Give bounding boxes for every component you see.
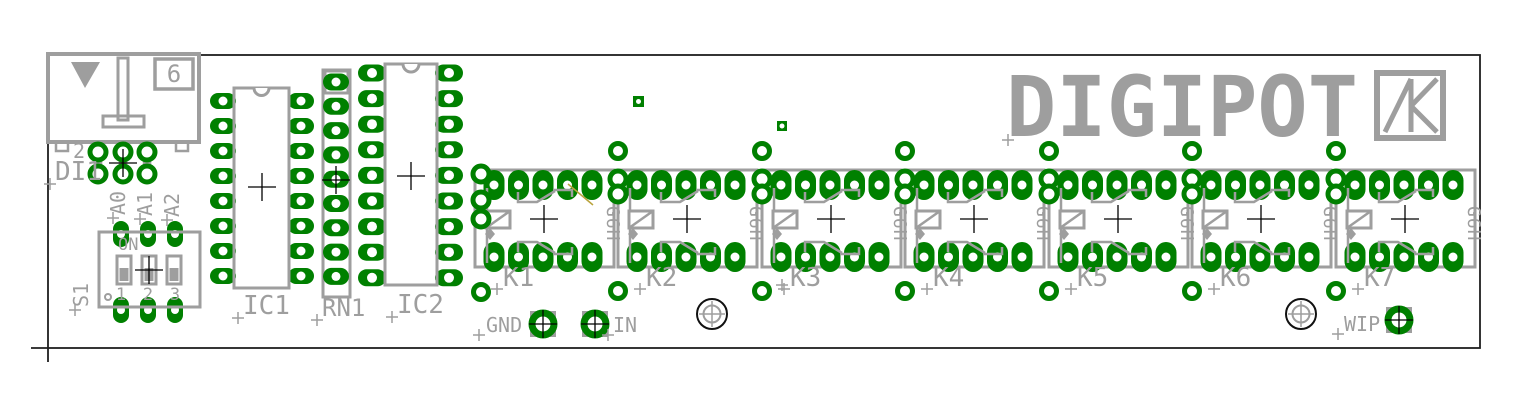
cavity-count-label: 6 <box>167 60 181 88</box>
jumper-a0-label: A0 <box>106 191 130 215</box>
ic2-ref-label: IC2 <box>397 290 444 320</box>
relay-k4: K4 G6H <box>905 170 1053 295</box>
dip-switch-ref-label: S1 <box>69 283 93 307</box>
brand-silkscreen: DIGIPOT <box>1002 58 1443 156</box>
relay-k3: K3 G6H <box>762 170 910 295</box>
jumper-a2-label: A2 <box>160 193 184 217</box>
relay-type-label: G6H <box>1463 206 1484 242</box>
ic2-notch <box>403 64 419 72</box>
ic1-notch <box>254 88 269 96</box>
ic1-footprint: IC1 <box>210 88 314 324</box>
relay-ref-label: K1 <box>503 263 534 293</box>
relay-k5: K5 G6H <box>1049 170 1197 295</box>
dip-pos2-label: 2 <box>143 285 153 305</box>
relay-ref-label: K2 <box>646 263 677 293</box>
relay-ref-label: K3 <box>790 263 821 293</box>
relay-bank: K1 G6H K2 G6H K3 G6H K4 G6H K5 G6H K6 G6… <box>473 144 1484 300</box>
in-label: IN <box>613 313 637 337</box>
gnd-label: GND <box>486 313 522 337</box>
address-jumper-labels: A0 A1 A2 <box>106 191 184 226</box>
brand-logo-icon <box>1377 73 1443 138</box>
relay-type-label: G6H <box>602 206 623 242</box>
rn1-footprint: RN1 <box>311 70 365 326</box>
pcb-layout-view: 6 2 DI1 A0 A1 A2 <box>0 0 1530 407</box>
vias <box>633 96 787 131</box>
connector-ref-label: DI1 <box>55 157 102 187</box>
mounting-hole-icon <box>1286 299 1316 329</box>
relay-k6: K6 G6H <box>1192 170 1340 295</box>
relay-ref-label: K7 <box>1364 263 1395 293</box>
ic1-ref-label: IC1 <box>243 291 290 321</box>
polarity-triangle-icon <box>71 62 100 88</box>
test-points: GND IN WIP <box>473 306 1413 341</box>
relay-type-label: G6H <box>889 206 910 242</box>
wip-test-pad <box>1385 306 1413 334</box>
relay-k1: K1 G6H <box>475 170 623 295</box>
dip-switch-s1: ON 1 2 3 S1 <box>69 221 200 323</box>
connector-slot <box>118 58 128 120</box>
relay-ref-label: K6 <box>1220 263 1251 293</box>
pcb-canvas: 6 2 DI1 A0 A1 A2 <box>0 0 1530 407</box>
ic2-footprint: IC2 <box>358 64 463 323</box>
relay-ref-label: K4 <box>933 263 964 293</box>
dip-on-label: ON <box>118 235 138 255</box>
brand-text: DIGIPOT <box>1006 58 1358 156</box>
in-test-pad <box>581 310 609 338</box>
rn1-ref-label: RN1 <box>322 294 365 322</box>
dip-pos3-label: 3 <box>170 285 180 305</box>
relay-k2: K2 G6H <box>618 170 766 295</box>
relay-type-label: G6H <box>1176 206 1197 242</box>
jumper-a1-label: A1 <box>133 192 157 216</box>
wip-label: WIP <box>1344 312 1380 336</box>
gnd-test-pad <box>529 310 557 338</box>
relay-k7: K7 G6H <box>1336 170 1484 295</box>
dip-pos1-label: 1 <box>116 285 126 305</box>
mounting-hole-icon <box>697 299 727 329</box>
connector-di1: 6 2 DI1 <box>44 54 199 190</box>
relay-ref-label: K5 <box>1077 263 1108 293</box>
